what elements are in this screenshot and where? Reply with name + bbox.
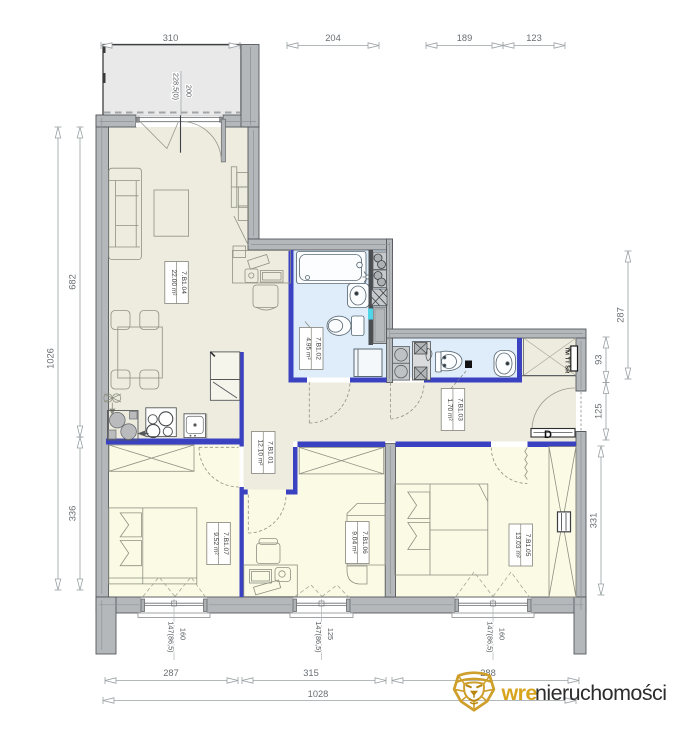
svg-text:125: 125: [326, 628, 335, 640]
svg-text:125: 125: [594, 403, 604, 419]
svg-text:nieruchomości: nieruchomości: [535, 681, 666, 705]
svg-text:TM TT SR: TM TT SR: [564, 347, 570, 375]
svg-text:160: 160: [498, 628, 507, 640]
svg-text:228,5(0): 228,5(0): [172, 73, 181, 100]
svg-text:9.04 m²: 9.04 m²: [351, 531, 358, 554]
svg-text:12.10 m²: 12.10 m²: [257, 439, 264, 466]
svg-text:287: 287: [163, 668, 179, 678]
svg-text:310: 310: [163, 33, 179, 43]
svg-text:287: 287: [616, 307, 626, 323]
svg-text:147(86,5): 147(86,5): [314, 621, 323, 652]
svg-text:204: 204: [325, 33, 341, 43]
svg-text:9.52 m²: 9.52 m²: [212, 532, 219, 555]
svg-text:1028: 1028: [308, 689, 329, 699]
svg-text:336: 336: [68, 506, 78, 522]
svg-text:7.B1.03: 7.B1.03: [456, 398, 463, 421]
svg-text:7.B1.04: 7.B1.04: [180, 271, 187, 294]
svg-text:wre: wre: [501, 681, 538, 705]
svg-text:22.00 m²: 22.00 m²: [170, 269, 177, 296]
svg-text:13.03 m²: 13.03 m²: [514, 532, 521, 559]
svg-text:189: 189: [457, 33, 473, 43]
svg-text:200: 200: [185, 85, 194, 97]
svg-text:123: 123: [526, 33, 542, 43]
svg-text:D: D: [544, 429, 552, 441]
svg-text:7.B1.07: 7.B1.07: [222, 532, 229, 555]
svg-text:93: 93: [594, 355, 604, 365]
svg-text:147(86,5): 147(86,5): [486, 621, 495, 652]
svg-text:7.B1.02: 7.B1.02: [315, 337, 322, 360]
svg-text:7.B1.01: 7.B1.01: [267, 441, 274, 464]
svg-text:315: 315: [303, 668, 319, 678]
svg-text:7.B1.06: 7.B1.06: [361, 531, 368, 554]
svg-text:331: 331: [589, 513, 599, 529]
svg-text:682: 682: [68, 274, 78, 290]
svg-text:4.95 m²: 4.95 m²: [305, 337, 312, 360]
svg-text:7.B1.05: 7.B1.05: [524, 534, 531, 557]
svg-text:160: 160: [179, 628, 188, 640]
svg-text:1026: 1026: [46, 348, 56, 369]
svg-text:1.70 m²: 1.70 m²: [446, 398, 453, 421]
svg-text:147(86,5): 147(86,5): [167, 621, 176, 652]
